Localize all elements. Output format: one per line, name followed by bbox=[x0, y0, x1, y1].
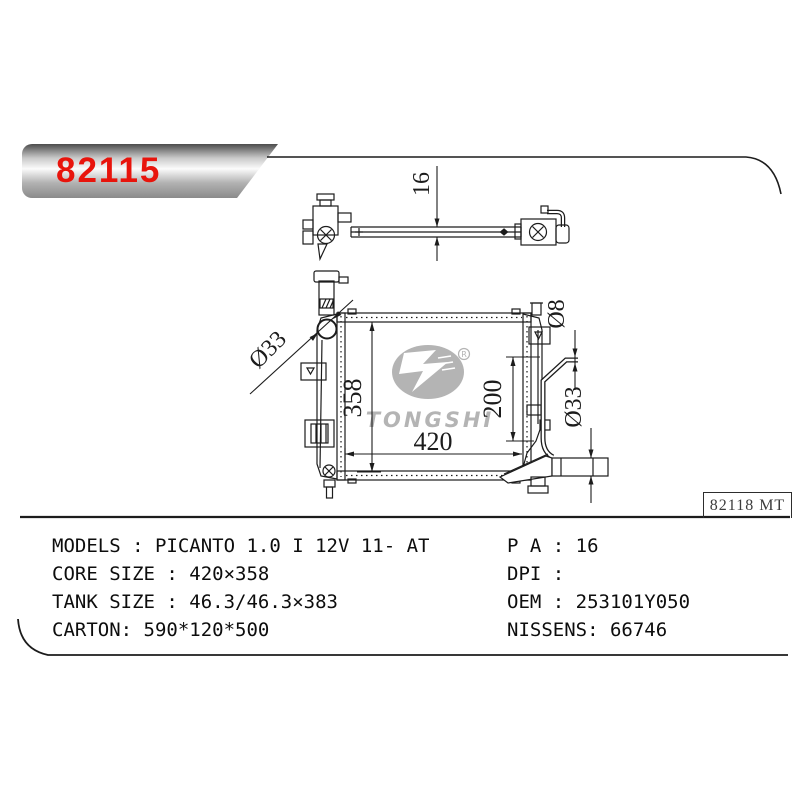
radiator-top-view bbox=[303, 194, 569, 259]
spec-models: MODELS : PICANTO 1.0 I 12V 11- AT bbox=[52, 532, 430, 560]
dim-outlet-offset-label: 200 bbox=[478, 380, 507, 419]
spec-tank-size: TANK SIZE : 46.3/46.3×383 bbox=[52, 588, 430, 616]
dim-thickness-label: 16 bbox=[409, 172, 435, 196]
tongshi-watermark-logo: R TONGSHI bbox=[366, 345, 495, 432]
registered-mark: R bbox=[461, 350, 467, 359]
dim-core-width-label: 420 bbox=[414, 427, 453, 456]
spec-pa: P A : 16 bbox=[507, 532, 690, 560]
spec-carton: CARTON: 590*120*500 bbox=[52, 616, 430, 644]
spec-column-left: MODELS : PICANTO 1.0 I 12V 11- AT CORE S… bbox=[52, 532, 430, 644]
dim-overflow-tube-label: Ø8 bbox=[544, 299, 570, 328]
datasheet-page: 82115 bbox=[0, 0, 800, 800]
spec-oem: OEM : 253101Y050 bbox=[507, 588, 690, 616]
spec-dpi: DPI : bbox=[507, 560, 690, 588]
dim-outlet-diameter: Ø33 bbox=[561, 386, 602, 503]
drawing-code-box: 82118 MT bbox=[703, 492, 792, 518]
dim-thickness: 16 bbox=[409, 166, 440, 261]
dim-filler-diameter-label: Ø33 bbox=[244, 326, 292, 374]
spec-core-size: CORE SIZE : 420×358 bbox=[52, 560, 430, 588]
drawing-code-text: 82118 MT bbox=[710, 497, 785, 515]
radiator-technical-drawing: 16 bbox=[0, 0, 800, 800]
spec-nissens: NISSENS: 66746 bbox=[507, 616, 690, 644]
dim-outlet-diameter-label: Ø33 bbox=[561, 386, 587, 427]
dim-core-height-label: 358 bbox=[338, 379, 367, 418]
spec-column-right: P A : 16 DPI : OEM : 253101Y050 NISSENS:… bbox=[507, 532, 690, 644]
